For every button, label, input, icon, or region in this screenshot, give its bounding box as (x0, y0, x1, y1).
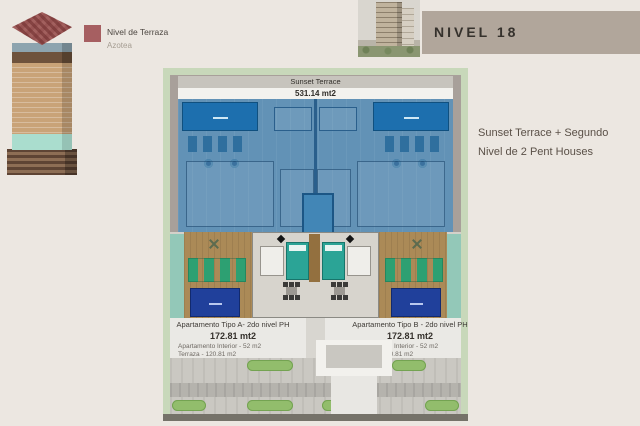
terrace-title: Sunset Terrace (178, 76, 453, 88)
spa-right-label-mark (410, 303, 423, 305)
terrace-room-left (186, 161, 274, 227)
street-pavement-band (170, 383, 461, 397)
cabana-right (319, 107, 357, 131)
bed-right (322, 242, 345, 280)
deck-loungers-left (188, 258, 246, 282)
dining-set-right (330, 282, 349, 300)
tower-mint-level (12, 133, 72, 150)
apartment-a-interior: Apartamento Interior - 52 m2 (178, 343, 298, 351)
terrace-loungers-right (385, 136, 443, 152)
entrance-canopy-opening (326, 345, 382, 368)
tower-tan-levels (12, 62, 72, 134)
dining-table (286, 287, 297, 295)
column-marker (277, 235, 285, 243)
legend-subtitle: Azotea (107, 41, 132, 50)
building-photo-thumbnail (358, 0, 420, 57)
spa-pool-left (190, 288, 240, 317)
floor-plan: Sunset Terrace 531.14 mt2 (163, 68, 468, 421)
dining-chairs (331, 282, 336, 287)
apartment-level-zone (170, 232, 461, 318)
shrub (247, 400, 293, 411)
palm-icon (208, 238, 220, 250)
shrub (392, 360, 426, 371)
entrance-path (331, 376, 377, 414)
legend-terrace-swatch (84, 25, 101, 42)
pool-right (373, 102, 449, 131)
center-wall (309, 234, 320, 282)
apartment-a-name: Apartamento Tipo A- 2do nivel PH (168, 320, 298, 329)
sunset-terrace-zone (178, 99, 453, 232)
plan-bottom-edge (163, 414, 468, 421)
bed-left (286, 242, 309, 280)
thumbnail-tower-side (402, 8, 414, 50)
shrub (247, 360, 293, 371)
planter-strip-left (170, 234, 184, 318)
tower-base-slabs (7, 149, 77, 175)
deck-left (184, 232, 252, 318)
entrance-canopy (316, 340, 392, 376)
sofa-right (347, 246, 371, 276)
description-line-1: Sunset Terrace + Segundo (478, 124, 628, 143)
cabana-left (274, 107, 312, 131)
terrace-room-right (357, 161, 445, 227)
apartment-b-name: Apartamento Tipo B - 2do nivel PH (345, 320, 475, 329)
elevator-core (302, 193, 334, 234)
dining-set-left (282, 282, 301, 300)
shrub (425, 400, 459, 411)
deck-right (379, 232, 447, 318)
apartment-a-label: Apartamento Tipo A- 2do nivel PH 172.81 … (168, 320, 298, 359)
dining-table (334, 287, 345, 295)
level-title-bar: NIVEL 18 (422, 11, 640, 54)
spa-left-label-mark (209, 303, 222, 305)
dining-chairs (283, 282, 288, 287)
pool-left-label-mark (213, 117, 228, 119)
core-shaft-line (314, 99, 317, 195)
terrace-area: 531.14 mt2 (178, 88, 453, 99)
sofa-left (260, 246, 284, 276)
description-line-2: Nivel de 2 Pent Houses (478, 143, 628, 162)
thumbnail-tower (376, 2, 402, 50)
terrace-loungers-left (188, 136, 246, 152)
planter-strip-right (447, 234, 461, 318)
level-title: NIVEL 18 (434, 24, 518, 40)
pool-right-label-mark (404, 117, 419, 119)
building-stack-graphic (10, 12, 76, 180)
shrub (172, 400, 206, 411)
description-block: Sunset Terrace + Segundo Nivel de 2 Pent… (478, 124, 628, 162)
palm-icon (411, 238, 423, 250)
spa-pool-right (391, 288, 441, 317)
apartment-interiors (252, 232, 379, 318)
slide: Nivel de Terraza Azotea NIVEL 18 Sunset … (0, 0, 640, 426)
apartment-a-total: 172.81 mt2 (168, 331, 298, 341)
deck-loungers-right (385, 258, 443, 282)
pool-left (182, 102, 258, 131)
tower-brown-level (12, 51, 72, 63)
column-marker (346, 235, 354, 243)
legend-title: Nivel de Terraza (107, 27, 168, 37)
thumbnail-trees (358, 46, 420, 57)
